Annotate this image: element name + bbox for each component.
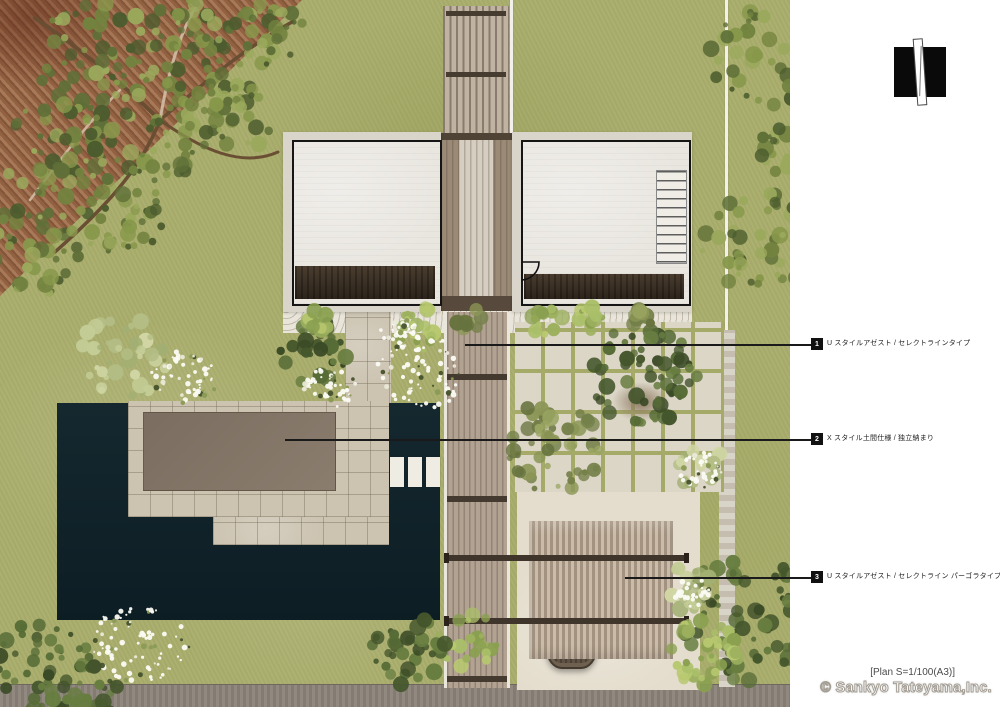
annotation-3-number: 3 [811,571,823,583]
site-plan-page: 1 U スタイルアゼスト / セレクトラインタイプ 2 X スタイル土間仕様 /… [0,0,1000,707]
annotation-1-label: U スタイルアゼスト / セレクトラインタイプ [827,338,970,350]
brand-mark-icon [893,38,947,106]
foliage [0,0,790,707]
plan-scale-note: [Plan S=1/100(A3)] [870,667,955,678]
leader-line-2 [285,439,811,441]
plan-drawing [0,0,790,707]
vegetation-layer [0,0,790,707]
annotation-2-number: 2 [811,433,823,445]
annotation-3-label: U スタイルアゼスト / セレクトライン パーゴラタイプ [827,571,1000,583]
door-swing-symbol [521,262,539,280]
copyright-text: © Sankyo Tateyama,Inc. [820,680,992,696]
annotation-1-number: 1 [811,338,823,350]
leader-line-3 [625,577,811,579]
annotation-2-label: X スタイル土間仕様 / 独立納まり [827,433,934,445]
leader-line-1 [465,344,811,346]
